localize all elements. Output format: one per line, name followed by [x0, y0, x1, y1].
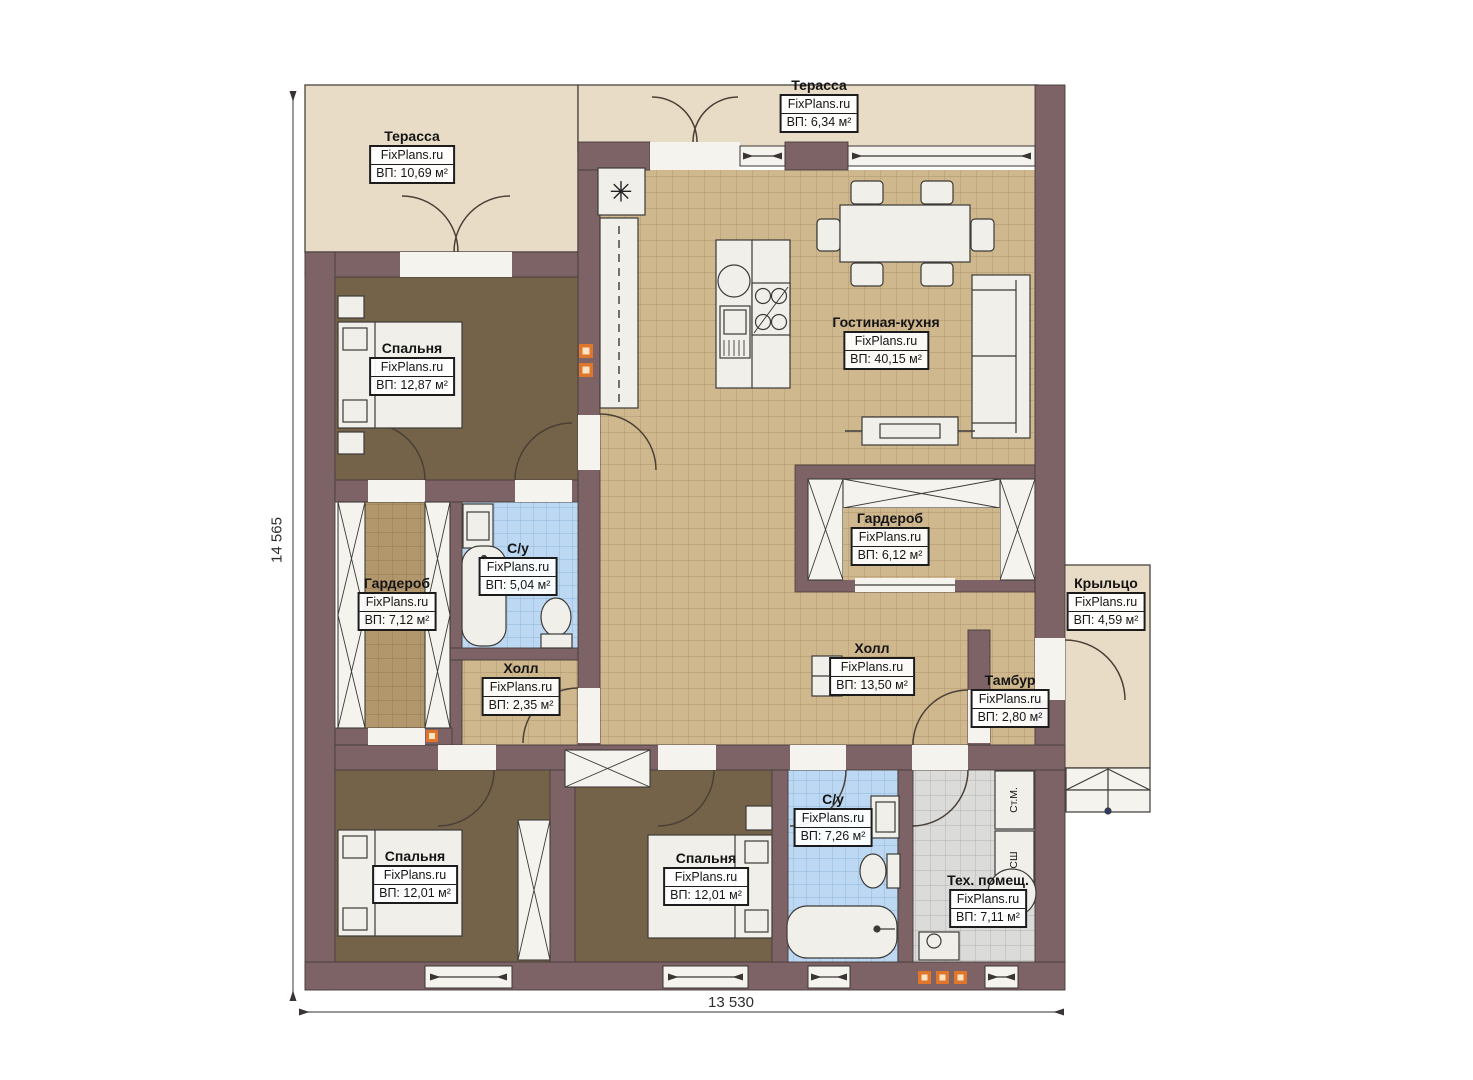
room-name: С/у — [507, 540, 529, 556]
watermark-text: FixPlans.ru — [371, 359, 453, 376]
room-name: Спальня — [382, 340, 442, 356]
watermark-text: FixPlans.ru — [831, 659, 913, 676]
room-area: ВП: 6,12 м² — [853, 546, 928, 564]
room-area: ВП: 5,04 м² — [481, 576, 556, 594]
room-info-box: FixPlans.ru ВП: 13,50 м² — [829, 657, 915, 696]
watermark-text: FixPlans.ru — [481, 559, 556, 576]
watermark-text: FixPlans.ru — [374, 867, 456, 884]
nightstand — [338, 432, 364, 454]
room-name: Тех. помещ. — [947, 872, 1029, 888]
dining-table — [840, 205, 970, 262]
room-name: Спальня — [385, 848, 445, 864]
wall-west — [305, 252, 335, 990]
room-area: ВП: 12,01 м² — [374, 884, 456, 902]
room-label-bathroom2: С/у FixPlans.ru ВП: 7,26 м² — [794, 791, 873, 847]
watermark-text: FixPlans.ru — [371, 147, 453, 164]
room-info-box: FixPlans.ru ВП: 7,12 м² — [358, 592, 437, 631]
room-info-box: FixPlans.ru ВП: 6,34 м² — [780, 94, 859, 133]
wall-east — [1035, 85, 1065, 962]
washing-machine-label: Ст.М. — [1008, 787, 1020, 813]
wall-bedroom2-3 — [550, 770, 575, 962]
room-name: С/у — [822, 791, 844, 807]
room-label-terrace-top: Терасса FixPlans.ru ВП: 6,34 м² — [780, 77, 859, 133]
toilet — [541, 598, 571, 636]
room-label-bedroom1: Спальня FixPlans.ru ВП: 12,87 м² — [369, 340, 455, 396]
room-info-box: FixPlans.ru ВП: 10,69 м² — [369, 145, 455, 184]
bathtub — [787, 906, 897, 958]
nightstand — [338, 296, 364, 318]
watermark-text: FixPlans.ru — [782, 96, 857, 113]
room-label-bedroom2: Спальня FixPlans.ru ВП: 12,01 м² — [372, 848, 458, 904]
room-info-box: FixPlans.ru ВП: 2,80 м² — [971, 689, 1050, 728]
room-area: ВП: 13,50 м² — [831, 676, 913, 694]
room-name: Крыльцо — [1074, 575, 1138, 591]
sofa — [972, 275, 1030, 438]
floor-plan: Терасса FixPlans.ru ВП: 10,69 м² Терасса… — [0, 0, 1473, 1080]
room-label-small-hall: Холл FixPlans.ru ВП: 2,35 м² — [482, 660, 561, 716]
room-area: ВП: 2,80 м² — [973, 708, 1048, 726]
drying-machine-label: СШ — [1008, 851, 1020, 868]
watermark-text: FixPlans.ru — [845, 333, 927, 350]
watermark-text: FixPlans.ru — [951, 891, 1025, 908]
room-label-terrace-left: Терасса FixPlans.ru ВП: 10,69 м² — [369, 128, 455, 184]
room-label-wardrobe2: Гардероб FixPlans.ru ВП: 6,12 м² — [851, 510, 930, 566]
pillow — [343, 400, 367, 422]
room-name: Тамбур — [985, 672, 1036, 688]
pillow — [343, 836, 367, 858]
room-area: ВП: 7,11 м² — [951, 908, 1025, 926]
room-label-hall: Холл FixPlans.ru ВП: 13,50 м² — [829, 640, 915, 696]
chair — [921, 263, 953, 286]
room-name: Спальня — [676, 850, 736, 866]
toilet — [860, 854, 886, 888]
chair — [817, 219, 840, 251]
porch-steps — [1066, 768, 1150, 814]
watermark-text: FixPlans.ru — [1069, 594, 1144, 611]
room-name: Холл — [503, 660, 538, 676]
room-area: ВП: 40,15 м² — [845, 350, 927, 368]
room-area: ВП: 12,01 м² — [665, 886, 747, 904]
wall-wardrobe-bath — [450, 502, 462, 745]
wall-bedroom3-bath2 — [772, 770, 788, 962]
watermark-text: FixPlans.ru — [665, 869, 747, 886]
room-area: ВП: 10,69 м² — [371, 164, 453, 182]
room-name: Гостиная-кухня — [832, 314, 939, 330]
room-area: ВП: 7,12 м² — [360, 611, 435, 629]
room-area: ВП: 2,35 м² — [484, 696, 559, 714]
watermark-text: FixPlans.ru — [796, 810, 871, 827]
chair — [851, 263, 883, 286]
room-label-bathroom1: С/у FixPlans.ru ВП: 5,04 м² — [479, 540, 558, 596]
room-label-wardrobe1: Гардероб FixPlans.ru ВП: 7,12 м² — [358, 575, 437, 631]
watermark-text: FixPlans.ru — [973, 691, 1048, 708]
watermark-text: FixPlans.ru — [360, 594, 435, 611]
room-area: ВП: 6,34 м² — [782, 113, 857, 131]
tv-stand — [845, 417, 975, 445]
room-info-box: FixPlans.ru ВП: 5,04 м² — [479, 557, 558, 596]
room-name: Терасса — [384, 128, 440, 144]
room-info-box: FixPlans.ru ВП: 12,01 м² — [372, 865, 458, 904]
room-label-tambour: Тамбур FixPlans.ru ВП: 2,80 м² — [971, 672, 1050, 728]
stove — [752, 283, 790, 335]
room-name: Гардероб — [857, 510, 923, 526]
pillow — [745, 910, 768, 932]
room-info-box: FixPlans.ru ВП: 6,12 м² — [851, 527, 930, 566]
room-name: Терасса — [791, 77, 847, 93]
watermark-text: FixPlans.ru — [484, 679, 559, 696]
room-name: Гардероб — [364, 575, 430, 591]
room-info-box: FixPlans.ru ВП: 12,01 м² — [663, 867, 749, 906]
room-area: ВП: 12,87 м² — [371, 376, 453, 394]
chair — [971, 219, 994, 251]
room-label-porch: Крыльцо FixPlans.ru ВП: 4,59 м² — [1067, 575, 1146, 631]
pillow — [343, 908, 367, 930]
room-info-box: FixPlans.ru ВП: 7,26 м² — [794, 808, 873, 847]
kitchen-sink — [718, 265, 750, 297]
room-label-tech-room: Тех. помещ. FixPlans.ru ВП: 7,11 м² — [947, 872, 1029, 928]
room-area: ВП: 4,59 м² — [1069, 611, 1144, 629]
room-area: ВП: 7,26 м² — [796, 827, 871, 845]
ventilation-icon: ✳ — [609, 176, 632, 209]
nightstand — [746, 806, 772, 830]
pillow — [343, 328, 367, 350]
chair — [921, 181, 953, 204]
room-name: Холл — [854, 640, 889, 656]
room-info-box: FixPlans.ru ВП: 40,15 м² — [843, 331, 929, 370]
chair — [851, 181, 883, 204]
kitchen-island — [716, 240, 790, 388]
watermark-text: FixPlans.ru — [853, 529, 928, 546]
room-label-bedroom3: Спальня FixPlans.ru ВП: 12,01 м² — [663, 850, 749, 906]
room-info-box: FixPlans.ru ВП: 7,11 м² — [949, 889, 1027, 928]
wall-bath1-south — [450, 648, 578, 660]
room-label-living-kitchen: Гостиная-кухня FixPlans.ru ВП: 40,15 м² — [832, 314, 939, 370]
dimension-height: 14 565 — [269, 517, 286, 563]
room-info-box: FixPlans.ru ВП: 2,35 м² — [482, 677, 561, 716]
room-info-box: FixPlans.ru ВП: 4,59 м² — [1067, 592, 1146, 631]
floor-plan-drawing — [0, 0, 1473, 1080]
wall-north-kitchen — [578, 142, 650, 170]
room-info-box: FixPlans.ru ВП: 12,87 м² — [369, 357, 455, 396]
dimension-width: 13 530 — [708, 994, 754, 1011]
wall-north-pier — [785, 142, 848, 170]
